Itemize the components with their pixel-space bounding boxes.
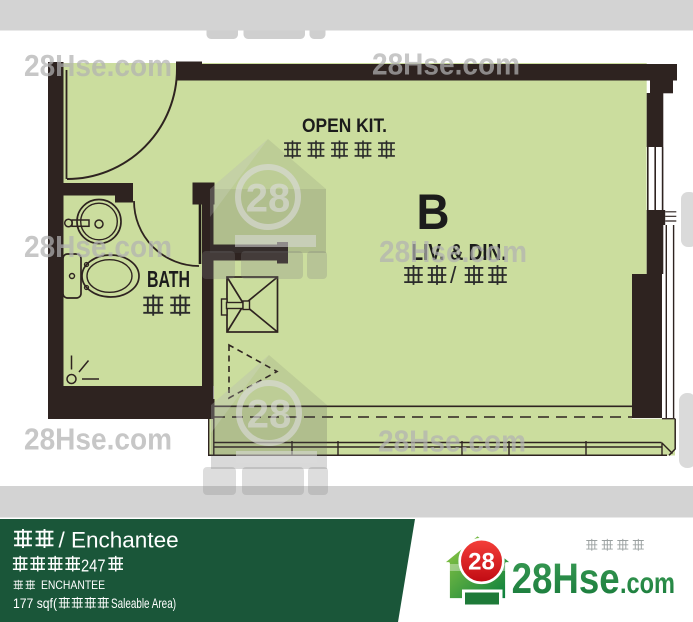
svg-text:28Hse.com: 28Hse.com bbox=[372, 47, 520, 82]
svg-text:B: B bbox=[417, 184, 450, 240]
svg-text:OPEN KIT.: OPEN KIT. bbox=[302, 116, 387, 137]
svg-text:28Hse.com: 28Hse.com bbox=[24, 422, 172, 457]
svg-text:28Hse.com: 28Hse.com bbox=[379, 234, 527, 269]
svg-text:28Hse: 28Hse bbox=[512, 555, 620, 603]
svg-text:28Hse.com: 28Hse.com bbox=[24, 229, 172, 264]
svg-text:28Hse.com: 28Hse.com bbox=[24, 48, 172, 83]
svg-text:177 sqf(: 177 sqf( bbox=[13, 595, 57, 611]
svg-text:28: 28 bbox=[468, 549, 495, 576]
svg-text:BATH: BATH bbox=[147, 266, 190, 292]
svg-text:.com: .com bbox=[620, 567, 675, 600]
svg-text:28Hse.com: 28Hse.com bbox=[378, 424, 526, 459]
svg-text:/ Enchantee: / Enchantee bbox=[59, 528, 179, 553]
svg-text:247: 247 bbox=[81, 556, 106, 576]
svg-text:Saleable Area): Saleable Area) bbox=[111, 595, 176, 611]
svg-text:ENCHANTEE: ENCHANTEE bbox=[41, 578, 105, 592]
